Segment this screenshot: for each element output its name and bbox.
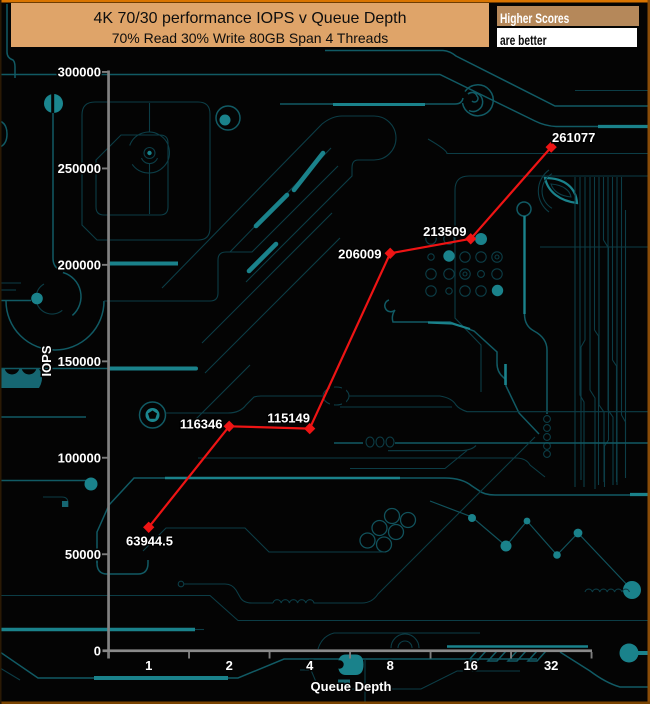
svg-text:IOPS: IOPS: [39, 345, 54, 376]
svg-text:8: 8: [387, 658, 394, 673]
svg-text:4: 4: [306, 658, 314, 673]
svg-text:250000: 250000: [58, 161, 101, 176]
svg-text:2: 2: [226, 658, 233, 673]
svg-text:50000: 50000: [65, 547, 101, 562]
svg-text:63944.5: 63944.5: [126, 533, 173, 548]
svg-text:300000: 300000: [58, 65, 101, 80]
svg-text:32: 32: [544, 658, 558, 673]
svg-text:261077: 261077: [552, 130, 595, 145]
svg-text:150000: 150000: [58, 354, 101, 369]
svg-text:206009: 206009: [338, 247, 381, 262]
svg-text:116346: 116346: [180, 417, 223, 432]
svg-text:1: 1: [145, 658, 152, 673]
svg-text:200000: 200000: [58, 257, 101, 272]
svg-text:213509: 213509: [423, 224, 466, 239]
svg-text:100000: 100000: [58, 450, 101, 465]
svg-text:115149: 115149: [267, 411, 310, 426]
svg-text:0: 0: [94, 644, 101, 659]
svg-text:16: 16: [463, 658, 477, 673]
svg-text:Queue Depth: Queue Depth: [311, 679, 392, 694]
